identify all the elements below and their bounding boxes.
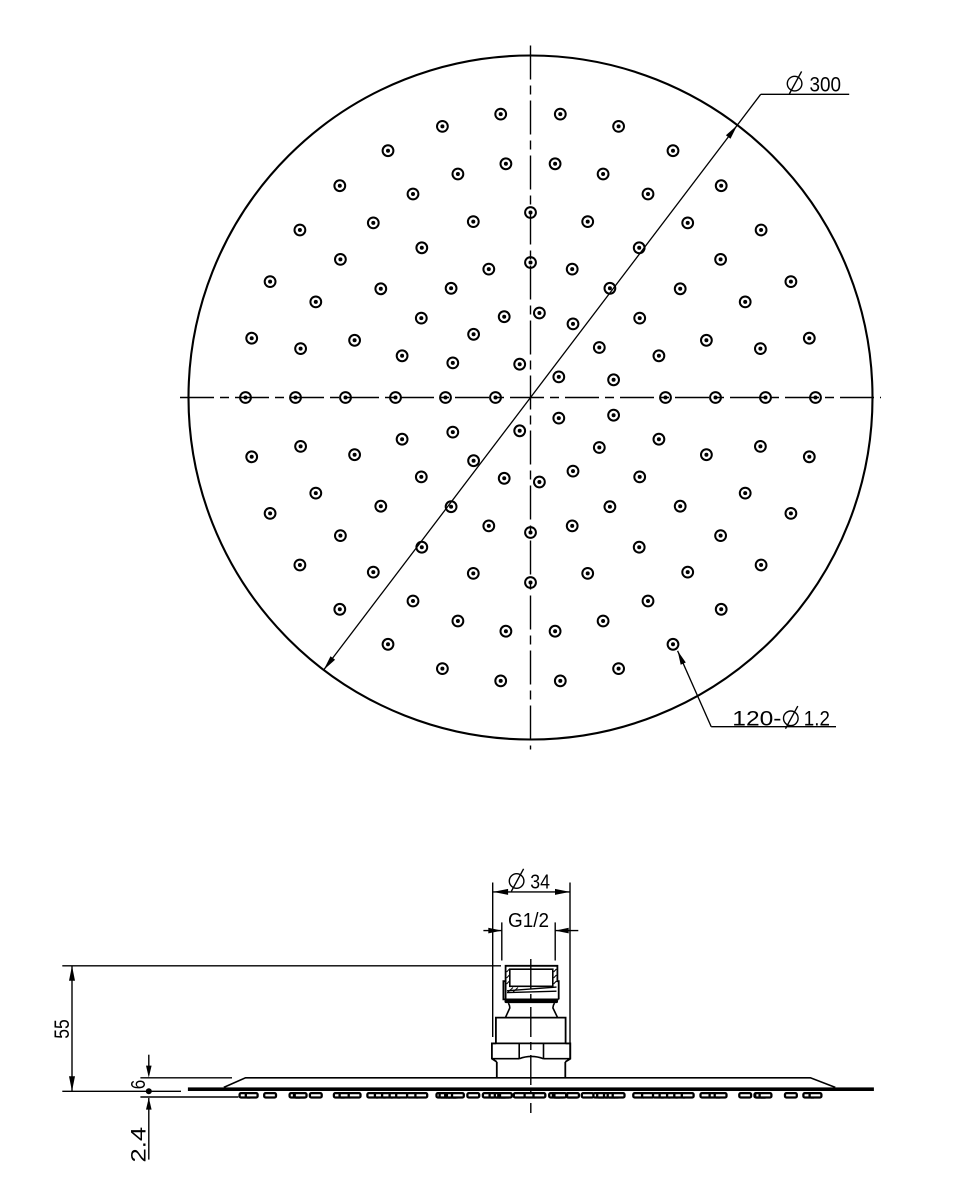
svg-text:34: 34 xyxy=(530,871,550,893)
svg-text:2.4: 2.4 xyxy=(128,1127,151,1163)
svg-text:120-: 120- xyxy=(732,707,781,730)
svg-text:G1/2: G1/2 xyxy=(508,910,549,932)
svg-text:55: 55 xyxy=(51,1019,74,1039)
svg-text:1.2: 1.2 xyxy=(804,707,830,730)
svg-text:300: 300 xyxy=(810,73,842,96)
svg-text:6: 6 xyxy=(128,1080,150,1090)
